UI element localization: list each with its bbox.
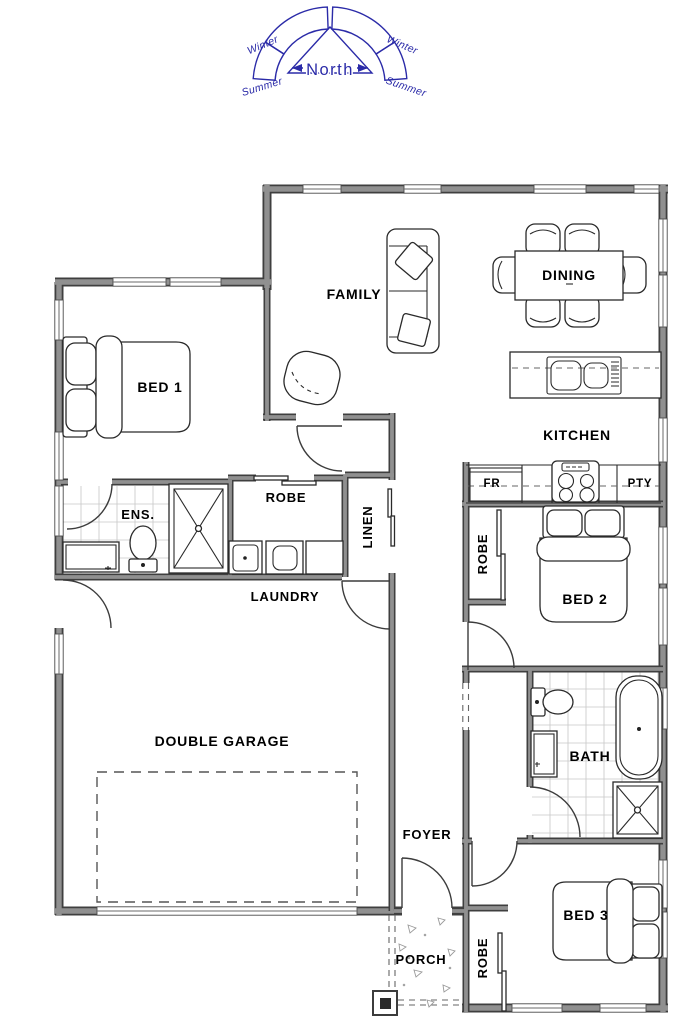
label-fridge: FR xyxy=(484,478,501,490)
room-label-kitchen: KITCHEN xyxy=(543,427,611,443)
bath-shower xyxy=(613,782,662,838)
robe1-sliding-doors xyxy=(254,476,316,485)
room-label-bath: BATH xyxy=(569,748,610,764)
cooktop xyxy=(552,461,599,502)
sink-drainer xyxy=(611,362,619,386)
washing-machine xyxy=(266,541,303,574)
room-label-porch: PORCH xyxy=(396,952,447,967)
laundry-tub xyxy=(229,541,262,574)
bed2-fold xyxy=(537,537,630,561)
room-label-robe3: ROBE xyxy=(475,938,490,979)
garage-entry-door xyxy=(342,581,390,629)
label-pantry: PTY xyxy=(628,478,653,490)
bed3-door xyxy=(472,841,517,886)
bed1-fold xyxy=(96,336,122,438)
room-label-robe1: ROBE xyxy=(266,490,307,505)
compass-winter-right-label: Winter xyxy=(385,33,420,57)
compass-rose-icon: North Winter Winter Summer Summer xyxy=(240,7,428,100)
dryer-space xyxy=(306,541,343,574)
compass-winter-left-label: Winter xyxy=(245,33,280,57)
bed3-fold xyxy=(607,879,633,963)
robe3-sliding-doors xyxy=(498,933,506,1011)
pillow xyxy=(66,343,96,385)
pillow xyxy=(632,887,659,921)
floor-plan-page: North Winter Winter Summer Summer xyxy=(0,0,683,1024)
laundry-fixtures xyxy=(229,541,343,574)
garage-door-outline xyxy=(97,772,357,902)
porch-post xyxy=(373,991,397,1015)
floor-plan-drawing: North Winter Winter Summer Summer xyxy=(0,0,683,1024)
robe2-sliding-doors xyxy=(497,510,505,600)
bath-vanity xyxy=(531,731,557,777)
bed2-door xyxy=(468,622,514,670)
room-label-family: FAMILY xyxy=(327,286,382,302)
room-label-bed3: BED 3 xyxy=(563,907,608,923)
room-label-laundry: LAUNDRY xyxy=(251,589,320,604)
room-label-ensuite: ENS. xyxy=(121,507,155,522)
cased-opening-dashed xyxy=(463,683,469,730)
room-label-foyer: FOYER xyxy=(403,827,452,842)
ensuite-shower xyxy=(169,484,228,573)
family-hall-door xyxy=(297,426,342,471)
pillow xyxy=(547,510,582,536)
sofa-cushion xyxy=(397,313,431,347)
room-label-robe2: ROBE xyxy=(475,534,490,575)
ensuite-fixtures xyxy=(63,484,228,573)
linen-doors xyxy=(388,489,395,546)
pillow xyxy=(585,510,620,536)
ensuite-vanity xyxy=(63,542,119,572)
room-label-bed2: BED 2 xyxy=(562,591,607,607)
room-label-dining: DINING xyxy=(542,267,596,283)
room-label-garage: DOUBLE GARAGE xyxy=(155,733,290,749)
garage-markings xyxy=(97,772,357,902)
ensuite-toilet xyxy=(129,526,157,572)
bathtub xyxy=(616,676,662,779)
bath-toilet xyxy=(531,688,573,716)
family-armchair xyxy=(280,347,344,409)
garage-side-door xyxy=(63,580,111,628)
front-entry-door xyxy=(402,858,452,908)
compass-north-label: North xyxy=(306,61,354,79)
kitchen-island-bench xyxy=(510,352,661,398)
pillow xyxy=(66,389,96,431)
family-sofa xyxy=(387,229,439,353)
room-label-linen: LINEN xyxy=(360,506,375,549)
pillow xyxy=(632,924,659,958)
room-label-bed1: BED 1 xyxy=(137,379,182,395)
bath-door xyxy=(530,787,580,837)
